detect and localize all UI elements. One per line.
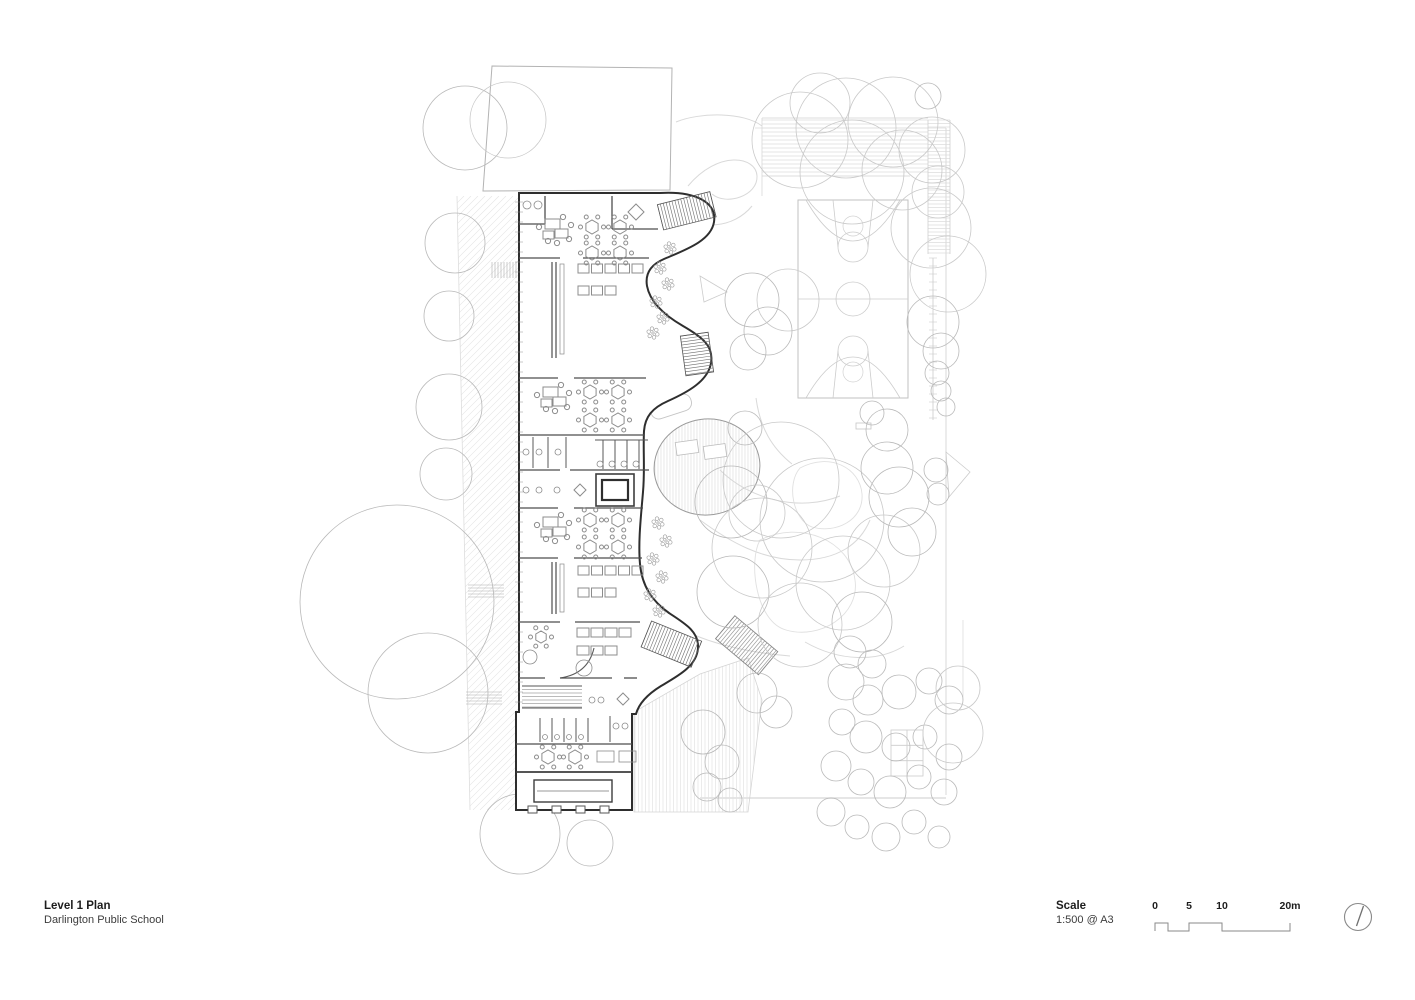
page-title: Level 1 Plan <box>44 899 164 913</box>
scale-bar-graphic <box>1153 919 1303 935</box>
scale-tick-0: 0 <box>1152 900 1158 912</box>
north-arrow-icon <box>1341 900 1375 934</box>
scale-tick-20m: 20m <box>1279 900 1300 912</box>
drawing-sheet: Level 1 Plan Darlington Public School Sc… <box>0 0 1415 1000</box>
scale-block: Scale 1:500 @ A3 <box>1056 899 1114 927</box>
scale-tick-10: 10 <box>1216 900 1228 912</box>
floor-plan-drawing <box>0 0 1415 1000</box>
scale-value: 1:500 @ A3 <box>1056 913 1114 927</box>
page-subtitle: Darlington Public School <box>44 913 164 927</box>
scale-tick-5: 5 <box>1186 900 1192 912</box>
scale-bar: 0 5 10 20m <box>1153 899 1303 941</box>
north-needle <box>1357 906 1364 926</box>
title-block: Level 1 Plan Darlington Public School <box>44 899 164 927</box>
scale-label: Scale <box>1056 899 1114 913</box>
